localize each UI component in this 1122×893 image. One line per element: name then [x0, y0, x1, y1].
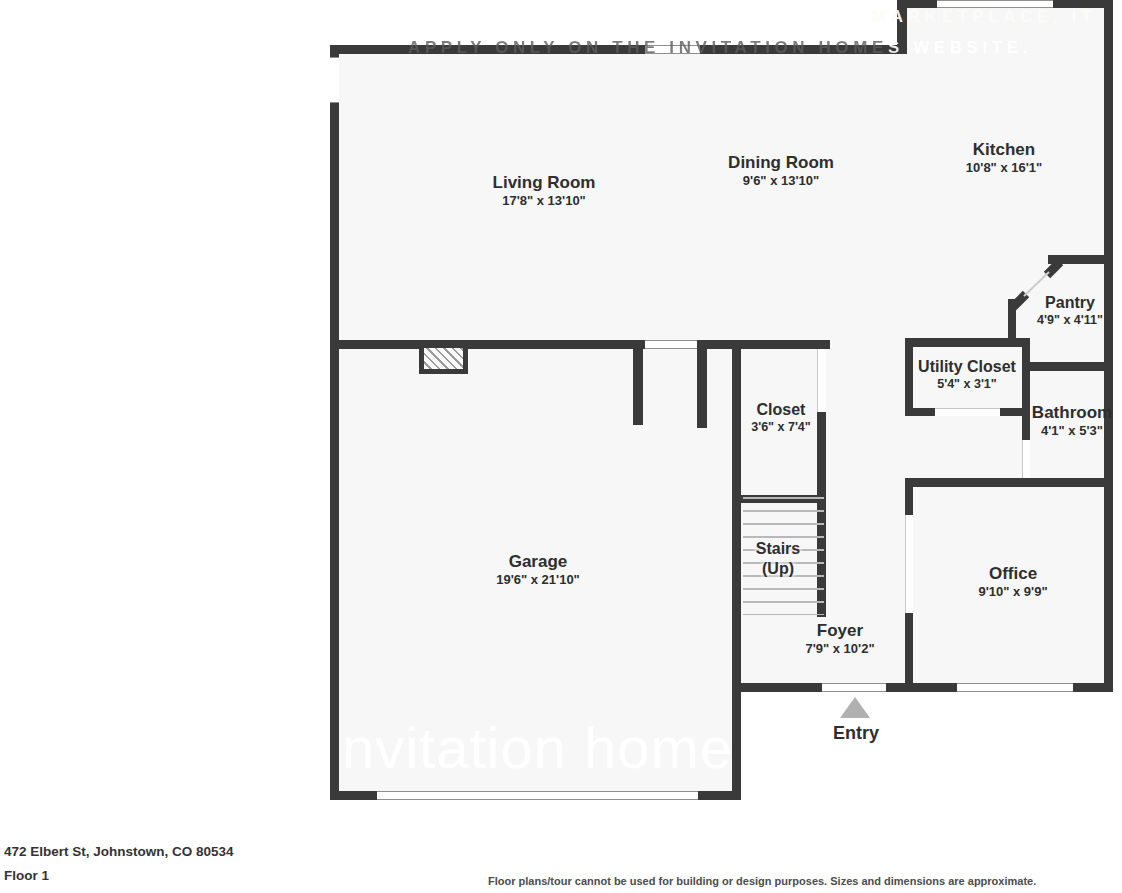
room-label-garage: Garage 19'6" x 21'10": [496, 551, 580, 589]
wall-office-top: [905, 478, 1113, 487]
room-dims: 7'9" x 10'2": [805, 641, 874, 657]
room-label-pantry: Pantry 4'9" x 4'11": [1037, 293, 1103, 329]
room-dims: 9'6" x 13'10": [728, 173, 834, 189]
wall-garage-right: [732, 340, 741, 800]
floor-number-text: Floor 1: [4, 868, 49, 883]
window-office-bottom: [957, 683, 1073, 692]
room-name: Bathroom: [1032, 402, 1112, 423]
wall-left-exterior: [330, 45, 339, 800]
floor-plan: invitation homes Liv: [0, 0, 1122, 893]
room-name: Dining Room: [728, 152, 834, 173]
fill-hall-bridge: [830, 338, 905, 350]
wall-office-left-upper: [905, 487, 913, 515]
door-bathroom: [1022, 440, 1030, 478]
wall-utility-bottom-left: [905, 408, 935, 416]
room-name: Pantry: [1037, 293, 1103, 313]
wall-office-bottom-right: [1073, 683, 1113, 692]
room-label-closet: Closet 3'6" x 7'4": [751, 400, 811, 436]
wall-closet-top: [697, 340, 830, 349]
room-label-bathroom: Bathroom 4'1" x 5'3": [1032, 402, 1112, 440]
room-label-entry: Entry: [833, 722, 879, 745]
room-name: Stairs: [756, 539, 800, 559]
door-utility-closet: [935, 408, 1000, 416]
room-dims: 9'10" x 9'9": [978, 584, 1047, 600]
door-closet: [817, 349, 826, 412]
wall-foyer-bottom-right: [886, 683, 905, 692]
room-name: Entry: [833, 722, 879, 745]
room-label-living-room: Living Room 17'8" x 13'10": [493, 172, 596, 210]
wall-mid-living-garage: [330, 340, 645, 349]
door-office: [905, 515, 913, 613]
room-label-office: Office 9'10" x 9'9": [978, 563, 1047, 601]
opening-garage-entry: [645, 340, 697, 349]
room-label-utility-closet: Utility Closet 5'4" x 3'1": [918, 357, 1016, 393]
entry-arrow-icon: [840, 697, 870, 718]
room-name: Garage: [496, 551, 580, 572]
wall-office-left-lower: [905, 613, 913, 683]
room-dims: 19'6" x 21'10": [496, 572, 580, 588]
room-name: Utility Closet: [918, 357, 1016, 377]
stairs-direction: (Up): [756, 559, 800, 579]
top-watermark-line2: APPLY ONLY ON THE INVITATION HOMES WEBSI…: [408, 38, 1032, 58]
garage-watermark-logo: invitation homes: [328, 714, 763, 781]
fireplace-hatch: [419, 343, 468, 374]
room-name: Office: [978, 563, 1047, 584]
opening-entry-door: [822, 683, 886, 692]
top-watermark-line1: MARKETPLACE, IT: [872, 7, 1096, 27]
wall-bathroom-top: [1030, 362, 1104, 371]
garage-door: [377, 791, 698, 800]
room-dims: 4'1" x 5'3": [1032, 423, 1112, 439]
wall-office-bottom-left: [905, 683, 957, 692]
wall-stub-left: [633, 349, 643, 425]
room-name: Closet: [751, 400, 811, 420]
room-dims: 3'6" x 7'4": [751, 420, 811, 436]
room-dims: 10'8" x 16'1": [966, 160, 1042, 176]
wall-bathroom-left: [1022, 347, 1030, 440]
room-dims: 4'9" x 4'11": [1037, 313, 1103, 329]
room-label-foyer: Foyer 7'9" x 10'2": [805, 620, 874, 658]
room-dims: 17'8" x 13'10": [493, 193, 596, 209]
room-label-kitchen: Kitchen 10'8" x 16'1": [966, 139, 1042, 177]
wall-utility-left: [905, 338, 913, 416]
wall-garage-bottom-right: [698, 791, 741, 800]
room-name: Kitchen: [966, 139, 1042, 160]
room-name: Foyer: [805, 620, 874, 641]
room-dims: 5'4" x 3'1": [918, 377, 1016, 393]
wall-stub-right: [697, 340, 707, 428]
address-text: 472 Elbert St, Johnstown, CO 80534: [4, 844, 234, 859]
room-name: Living Room: [493, 172, 596, 193]
fill-living-dining: [339, 54, 905, 344]
wall-foyer-bottom-left: [732, 683, 822, 692]
disclaimer-text: Floor plans/tour cannot be used for buil…: [488, 875, 1036, 887]
room-label-stairs: Stairs (Up): [756, 539, 800, 579]
room-label-dining-room: Dining Room 9'6" x 13'10": [728, 152, 834, 190]
window-left-wall: [330, 57, 339, 103]
